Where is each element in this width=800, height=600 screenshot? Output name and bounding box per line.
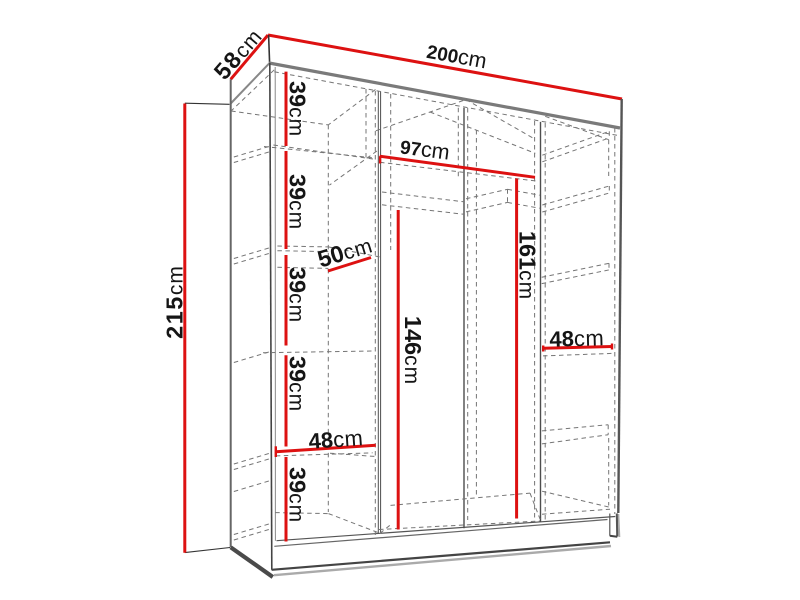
svg-text:146cm: 146cm bbox=[400, 316, 426, 385]
svg-text:161cm: 161cm bbox=[514, 231, 540, 300]
svg-text:39cm: 39cm bbox=[285, 267, 311, 323]
svg-text:39cm: 39cm bbox=[285, 356, 311, 412]
svg-text:39cm: 39cm bbox=[285, 81, 311, 137]
svg-text:39cm: 39cm bbox=[285, 467, 311, 523]
svg-text:48cm: 48cm bbox=[308, 425, 364, 454]
svg-text:48cm: 48cm bbox=[549, 325, 604, 351]
svg-text:215cm: 215cm bbox=[162, 265, 188, 339]
svg-text:39cm: 39cm bbox=[285, 174, 311, 230]
